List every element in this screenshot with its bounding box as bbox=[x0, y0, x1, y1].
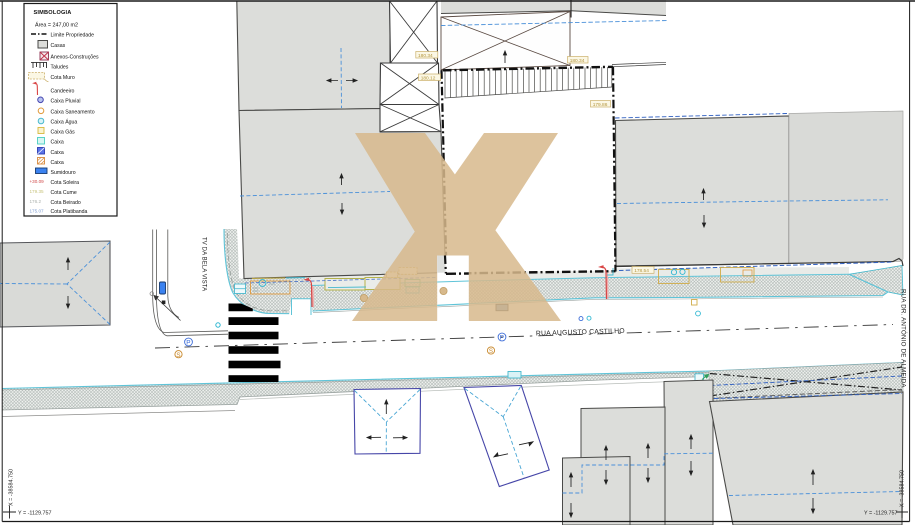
svg-text:180.12: 180.12 bbox=[421, 75, 436, 81]
svg-text:179.35: 179.35 bbox=[30, 189, 44, 194]
svg-text:Limite Propriedade: Limite Propriedade bbox=[51, 32, 95, 38]
svg-text:Caixa: Caixa bbox=[51, 140, 64, 146]
svg-text:RUA DR. ANTÓNIO DE ALMEIDA: RUA DR. ANTÓNIO DE ALMEIDA bbox=[900, 289, 907, 388]
svg-text:TV DA BELA VISTA: TV DA BELA VISTA bbox=[201, 237, 207, 291]
svg-text:176.2: 176.2 bbox=[30, 199, 42, 204]
svg-text:Caixa Água: Caixa Água bbox=[51, 119, 78, 126]
svg-text:Anexos-Construções: Anexos-Construções bbox=[51, 55, 100, 61]
svg-text:Caixa: Caixa bbox=[51, 150, 64, 156]
svg-text:180.34: 180.34 bbox=[570, 58, 585, 64]
svg-text:Caixa Saneamento: Caixa Saneamento bbox=[51, 109, 95, 115]
svg-text:180.34: 180.34 bbox=[418, 53, 433, 59]
svg-text:Sumidouro: Sumidouro bbox=[51, 170, 76, 176]
svg-text:S: S bbox=[176, 352, 180, 359]
svg-text:Candeeiro: Candeeiro bbox=[51, 89, 75, 95]
svg-text:Taludes: Taludes bbox=[51, 64, 69, 70]
svg-text:Cota Platibanda: Cota Platibanda bbox=[51, 209, 88, 215]
svg-text:Caixa Gás: Caixa Gás bbox=[51, 130, 76, 136]
svg-text:X = -38584.750: X = -38584.750 bbox=[900, 470, 906, 507]
svg-text:P: P bbox=[500, 335, 504, 342]
svg-text:Y = -1129.757: Y = -1129.757 bbox=[864, 511, 898, 517]
svg-text:Cota Soleira: Cota Soleira bbox=[51, 180, 80, 186]
svg-text:P: P bbox=[186, 340, 190, 347]
svg-text:Cota Muro: Cota Muro bbox=[51, 75, 75, 81]
svg-text:Área = 247,00 m2: Área = 247,00 m2 bbox=[35, 22, 78, 29]
svg-text:+30.09: +30.09 bbox=[30, 179, 45, 184]
svg-text:S: S bbox=[489, 348, 493, 355]
svg-text:RUA AUGUSTO CASTILHO: RUA AUGUSTO CASTILHO bbox=[536, 328, 625, 338]
svg-text:175.07: 175.07 bbox=[30, 209, 44, 214]
svg-text:X = -38584.750: X = -38584.750 bbox=[9, 469, 15, 506]
svg-text:Cota Beirado: Cota Beirado bbox=[51, 200, 81, 206]
svg-text:Casas: Casas bbox=[51, 43, 66, 49]
svg-text:Y = -1129.757: Y = -1129.757 bbox=[18, 511, 52, 517]
svg-text:179.86: 179.86 bbox=[593, 102, 608, 108]
svg-text:178.54: 178.54 bbox=[634, 268, 649, 274]
svg-text:SIMBOLOGIA: SIMBOLOGIA bbox=[34, 10, 72, 16]
svg-text:Cota Cume: Cota Cume bbox=[51, 190, 77, 196]
svg-text:Caixa Pluvial: Caixa Pluvial bbox=[51, 98, 81, 104]
svg-text:Caixa: Caixa bbox=[51, 160, 64, 166]
